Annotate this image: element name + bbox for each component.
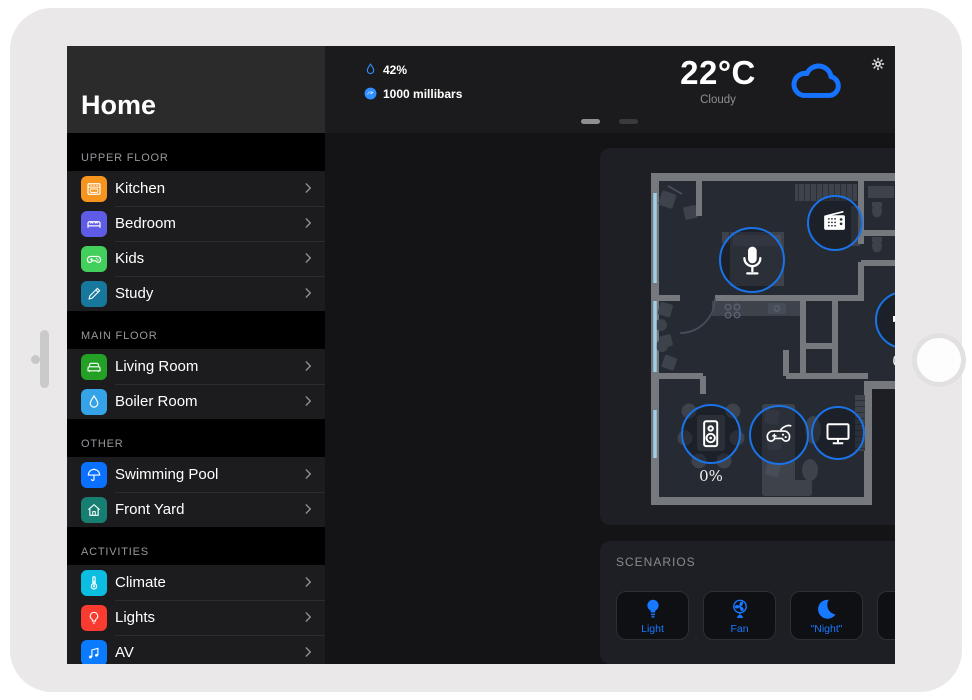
scenario-button-label: "Night" xyxy=(791,623,862,635)
scenario-button-label: Fan xyxy=(704,623,775,635)
app-screen: Home UPPER FLOOR Kitchen Bedroom Kids St… xyxy=(67,46,895,664)
chevron-right-icon xyxy=(301,467,315,481)
sidebar-item-front-yard[interactable]: Front Yard xyxy=(67,492,325,527)
humidity-drop-icon xyxy=(363,62,378,77)
umbrella-icon xyxy=(81,462,107,488)
speaker-wave-icon xyxy=(889,305,895,335)
microphone-icon xyxy=(735,243,770,278)
gamepad-icon xyxy=(81,246,107,272)
sidebar-item-label: Living Room xyxy=(115,358,198,375)
page-indicator xyxy=(581,119,638,124)
sidebar-item-kitchen[interactable]: Kitchen xyxy=(67,171,325,206)
chevron-right-icon xyxy=(301,181,315,195)
scenario-button-label: Light xyxy=(617,623,688,635)
scenario-button-light[interactable]: Light xyxy=(616,591,689,640)
scenario-button-night[interactable]: "Night" xyxy=(790,591,863,640)
humidity-value: 42% xyxy=(383,63,407,77)
device-microphone xyxy=(719,227,785,293)
device-ring-radio[interactable] xyxy=(807,195,863,251)
moon-icon xyxy=(815,597,839,621)
page-dot-2[interactable] xyxy=(619,119,638,124)
chevron-right-icon xyxy=(301,502,315,516)
sidebar-item-label: Climate xyxy=(115,574,166,591)
chevron-right-icon xyxy=(301,645,315,659)
tablet-frame: Home UPPER FLOOR Kitchen Bedroom Kids St… xyxy=(10,8,962,692)
speaker-box-icon xyxy=(695,418,726,449)
device-audio-volume: 0% xyxy=(875,291,895,349)
chevron-right-icon xyxy=(301,251,315,265)
device-game-console xyxy=(749,405,809,465)
scenario-button-sockets[interactable]: Sockets xyxy=(877,591,895,640)
device-radio xyxy=(807,195,863,251)
weather-condition: Cloudy xyxy=(668,94,768,106)
sidebar-item-label: Swimming Pool xyxy=(115,466,218,483)
chevron-right-icon xyxy=(301,359,315,373)
device-ring-microphone[interactable] xyxy=(719,227,785,293)
stove-icon xyxy=(81,176,107,202)
main-area: 42% 1000 millibars 22°C Cloudy xyxy=(325,46,895,664)
section-label: ACTIVITIES xyxy=(81,546,149,558)
app-title: Home xyxy=(81,90,156,121)
sidebar-section-header: UPPER FLOOR xyxy=(67,133,325,171)
page-dot-1[interactable] xyxy=(581,119,600,124)
sidebar-item-label: Bedroom xyxy=(115,215,176,232)
gear-icon[interactable] xyxy=(870,56,886,72)
sidebar-item-label: Boiler Room xyxy=(115,393,198,410)
device-ring-tv[interactable] xyxy=(811,406,865,460)
chevron-right-icon xyxy=(301,394,315,408)
sidebar-item-label: Kitchen xyxy=(115,180,165,197)
sidebar-item-lights[interactable]: Lights xyxy=(67,600,325,635)
pencil-icon xyxy=(81,281,107,307)
bulb-fill-icon xyxy=(641,597,665,621)
sidebar: Home UPPER FLOOR Kitchen Bedroom Kids St… xyxy=(67,46,325,664)
sidebar-item-living-room[interactable]: Living Room xyxy=(67,349,325,384)
sidebar-item-label: Lights xyxy=(115,609,155,626)
side-button xyxy=(40,330,49,388)
scenarios-title: SCENARIOS xyxy=(616,555,696,569)
section-label: MAIN FLOOR xyxy=(81,330,157,342)
temperature-value: 22°C xyxy=(668,54,768,92)
chevron-right-icon xyxy=(301,286,315,300)
top-bar: 42% 1000 millibars 22°C Cloudy xyxy=(325,46,895,133)
sidebar-section-header: MAIN FLOOR xyxy=(67,311,325,349)
sidebar-item-label: Kids xyxy=(115,250,144,267)
device-ring-audio-volume[interactable] xyxy=(875,291,895,349)
bed-icon xyxy=(81,211,107,237)
sofa-icon xyxy=(81,354,107,380)
sidebar-section-header: OTHER xyxy=(67,419,325,457)
sidebar-item-label: AV xyxy=(115,644,134,661)
device-ring-speaker[interactable] xyxy=(681,404,741,464)
home-button[interactable] xyxy=(912,333,966,387)
house-icon xyxy=(81,497,107,523)
music-notes-icon xyxy=(81,640,107,665)
drop-icon xyxy=(81,389,107,415)
pressure-row: 1000 millibars xyxy=(363,86,462,101)
pressure-value: 1000 millibars xyxy=(383,87,462,101)
sidebar-header: Home xyxy=(67,46,325,133)
radio-icon xyxy=(820,208,849,237)
camera-dot xyxy=(31,355,40,364)
sidebar-item-boiler-room[interactable]: Boiler Room xyxy=(67,384,325,419)
device-value-label: 0% xyxy=(892,352,895,370)
sidebar-item-av[interactable]: AV xyxy=(67,635,325,664)
humidity-row: 42% xyxy=(363,62,407,77)
scenarios-panel: SCENARIOS Light Fan "Night" Sockets Floo… xyxy=(600,541,895,664)
sidebar-item-swimming-pool[interactable]: Swimming Pool xyxy=(67,457,325,492)
chevron-right-icon xyxy=(301,610,315,624)
cloud-icon xyxy=(787,61,845,109)
pressure-gauge-icon xyxy=(363,86,378,101)
chevron-right-icon xyxy=(301,575,315,589)
scenario-button-fan[interactable]: Fan xyxy=(703,591,776,640)
scenario-button-label: Sockets xyxy=(878,623,895,635)
sidebar-item-label: Front Yard xyxy=(115,501,184,518)
chevron-right-icon xyxy=(301,216,315,230)
sidebar-item-study[interactable]: Study xyxy=(67,276,325,311)
device-ring-game-console[interactable] xyxy=(749,405,809,465)
device-speaker: 0% xyxy=(681,404,741,464)
page: Home UPPER FLOOR Kitchen Bedroom Kids St… xyxy=(0,0,972,700)
thermometer-icon xyxy=(81,570,107,596)
sidebar-item-climate[interactable]: Climate xyxy=(67,565,325,600)
tv-icon xyxy=(824,419,852,447)
sidebar-item-kids[interactable]: Kids xyxy=(67,241,325,276)
section-label: UPPER FLOOR xyxy=(81,152,169,164)
device-value-label: 0% xyxy=(699,467,723,485)
bulb-icon xyxy=(81,605,107,631)
section-label: OTHER xyxy=(81,438,124,450)
sidebar-item-label: Study xyxy=(115,285,153,302)
sidebar-section-header: ACTIVITIES xyxy=(67,527,325,565)
device-tv xyxy=(811,406,865,460)
floorplan-panel: 0% 0% xyxy=(600,148,895,525)
gamepad-cable-icon xyxy=(763,419,794,450)
temperature-block: 22°C Cloudy xyxy=(668,54,768,106)
sidebar-item-bedroom[interactable]: Bedroom xyxy=(67,206,325,241)
fan-icon xyxy=(728,597,752,621)
